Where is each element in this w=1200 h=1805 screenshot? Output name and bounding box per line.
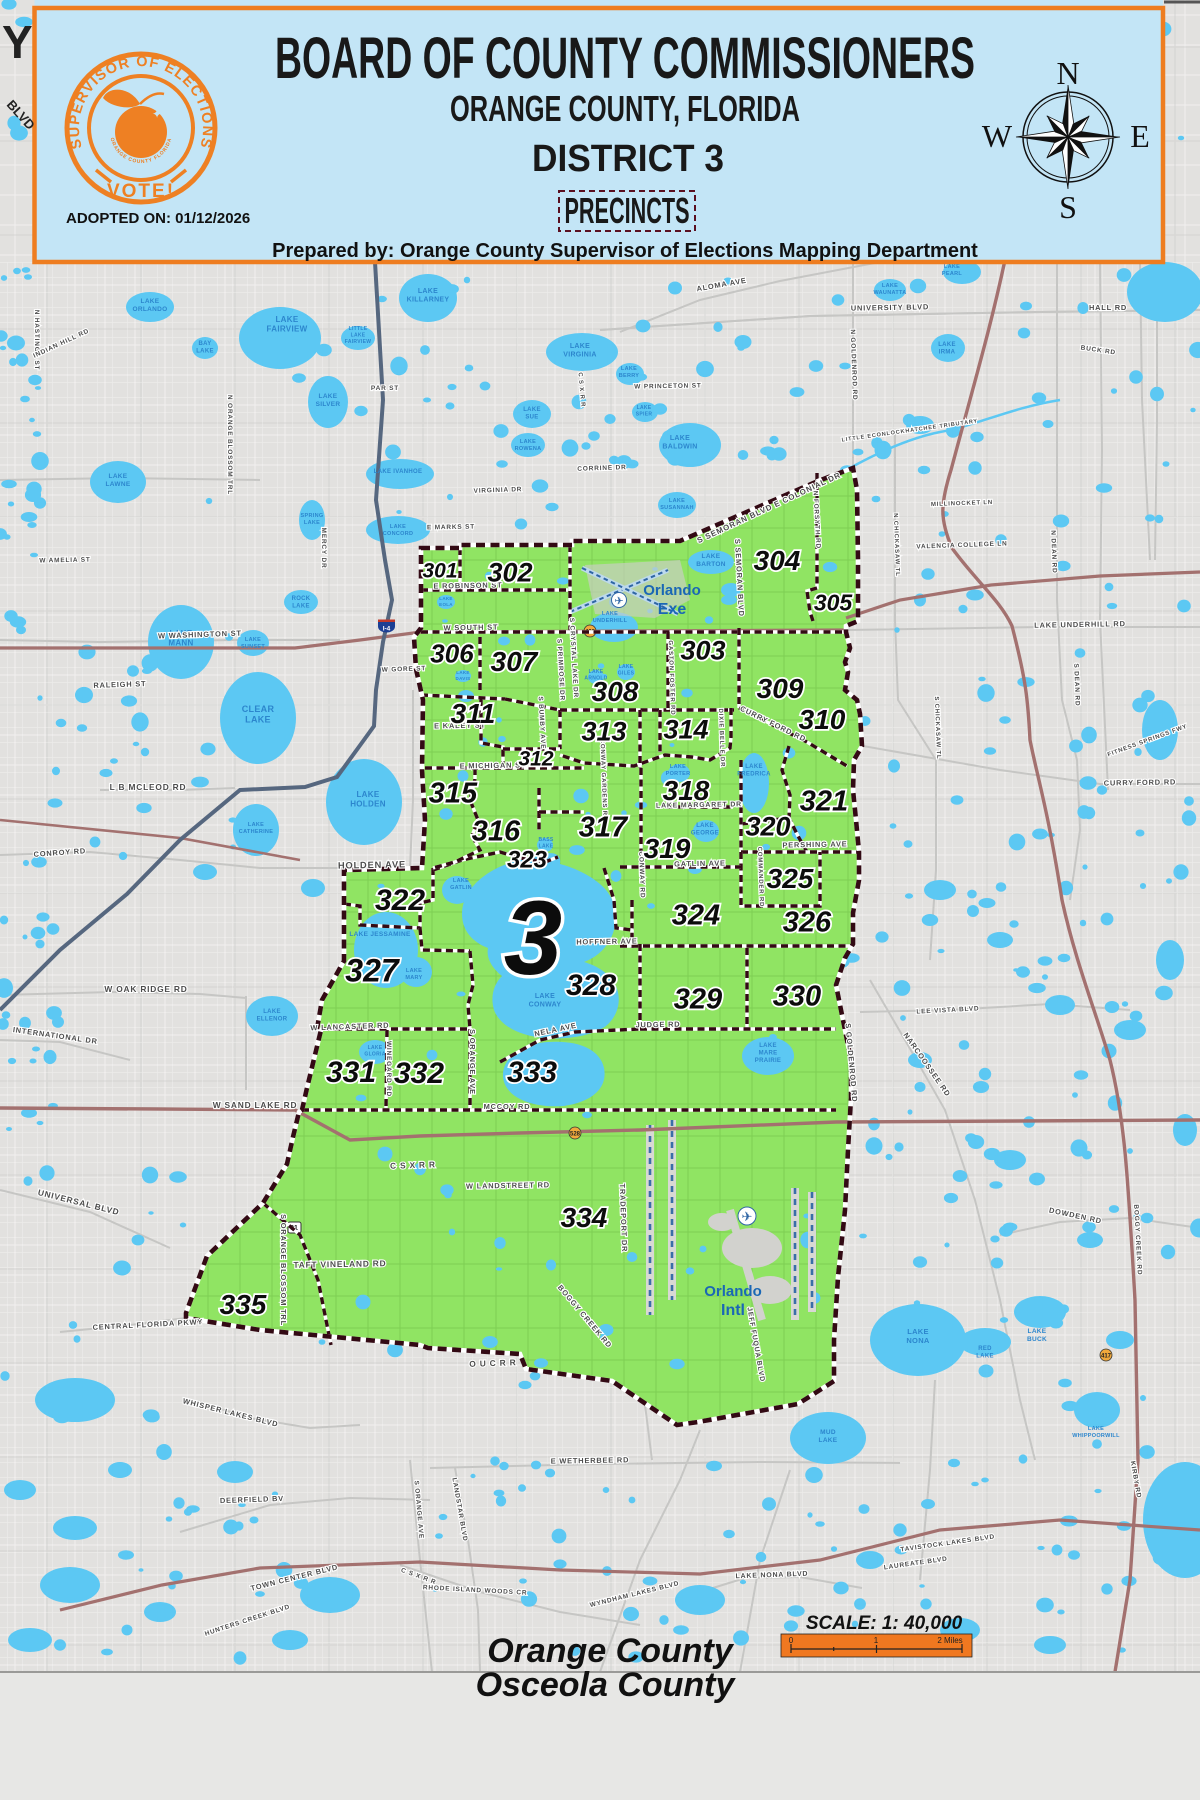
svg-text:LAKE: LAKE [759,1043,777,1049]
svg-text:LAKE: LAKE [637,405,652,411]
svg-text:BASS: BASS [538,837,553,843]
svg-text:W PRINCETON ST: W PRINCETON ST [634,382,702,390]
svg-text:LAKE JESSAMINE: LAKE JESSAMINE [349,931,411,938]
svg-text:LAKE: LAKE [621,366,637,372]
svg-text:GEORGE: GEORGE [691,831,719,837]
svg-text:306: 306 [430,638,474,668]
svg-text:301: 301 [422,560,457,583]
svg-text:0: 0 [789,1636,794,1645]
svg-text:LAKE: LAKE [907,1327,929,1336]
svg-text:Y: Y [2,16,33,68]
svg-text:VOTE!: VOTE! [107,181,175,202]
svg-text:417: 417 [1101,1354,1112,1360]
svg-text:LAKE: LAKE [406,968,422,974]
svg-text:LAKE IVANHOE: LAKE IVANHOE [374,469,423,475]
svg-text:LAKE: LAKE [109,473,128,480]
svg-text:Orlando: Orlando [643,582,701,599]
svg-text:PERSHING AVE: PERSHING AVE [782,839,847,849]
svg-text:310: 310 [799,704,846,735]
svg-text:LAKE: LAKE [319,393,338,400]
svg-text:LAKE UNDERHILL RD: LAKE UNDERHILL RD [1034,619,1126,630]
svg-text:317: 317 [579,811,629,843]
svg-text:311: 311 [451,698,496,729]
svg-text:WAUNATTA: WAUNATTA [873,290,906,296]
svg-text:FAIRVIEW: FAIRVIEW [267,325,308,334]
svg-text:BERRY: BERRY [619,373,640,379]
svg-text:LAKE: LAKE [141,298,160,305]
svg-text:LAKE: LAKE [882,283,898,289]
svg-text:N ORANGE BLOSSOM TRL: N ORANGE BLOSSOM TRL [226,395,233,495]
svg-text:329: 329 [674,983,722,1015]
svg-text:E: E [1130,118,1150,154]
svg-text:SUE: SUE [525,415,538,421]
svg-text:322: 322 [375,884,425,917]
svg-text:S DEAN RD: S DEAN RD [1072,663,1080,706]
svg-text:331: 331 [326,1056,376,1089]
svg-text:332: 332 [394,1057,444,1090]
svg-text:✦: ✦ [152,107,162,121]
svg-text:O U C R R: O U C R R [469,1357,516,1369]
svg-text:321: 321 [800,785,848,817]
svg-text:BUCK: BUCK [1027,1336,1047,1343]
svg-text:I-4: I-4 [383,626,391,633]
svg-text:304: 304 [754,545,801,576]
svg-text:DISTRICT 3: DISTRICT 3 [532,138,724,180]
svg-text:LAKE: LAKE [357,790,380,799]
svg-text:E MICHIGAN ST: E MICHIGAN ST [460,760,527,770]
svg-text:LAKE: LAKE [702,553,721,560]
svg-text:RALEIGH ST: RALEIGH ST [93,679,146,690]
svg-text:LAKE: LAKE [456,670,469,675]
svg-text:320: 320 [745,812,790,842]
svg-text:334: 334 [561,1202,608,1233]
svg-text:LAKE: LAKE [196,349,214,355]
svg-text:VIRGINIA: VIRGINIA [563,352,597,359]
svg-text:BARTON: BARTON [696,561,726,568]
svg-text:BAY: BAY [198,341,211,347]
svg-text:✈: ✈ [742,1209,753,1224]
svg-text:LAKE: LAKE [245,637,261,643]
svg-text:WINEGARD RD: WINEGARD RD [385,1041,392,1097]
svg-text:FREDRICA: FREDRICA [737,772,771,778]
svg-text:LAKE: LAKE [245,715,271,725]
svg-text:LAKE: LAKE [453,878,469,884]
svg-text:330: 330 [773,980,821,1012]
svg-text:LAKE: LAKE [292,604,310,610]
svg-text:CONCORD: CONCORD [383,531,414,537]
svg-text:302: 302 [487,558,532,588]
svg-text:JUDGE RD: JUDGE RD [635,1020,680,1030]
svg-text:LAKE: LAKE [602,611,618,617]
svg-text:FAIRVIEW: FAIRVIEW [345,339,371,345]
svg-text:ROWENA: ROWENA [515,446,542,452]
svg-text:TAFT VINELAND RD: TAFT VINELAND RD [293,1258,386,1270]
svg-text:LAKE: LAKE [418,288,438,295]
svg-text:LAKE: LAKE [1088,1426,1104,1432]
svg-text:316: 316 [472,815,521,847]
svg-text:LAKE: LAKE [276,315,299,324]
svg-text:319: 319 [644,833,691,864]
svg-text:E MARKS ST: E MARKS ST [427,524,475,532]
svg-text:LAKE: LAKE [368,1045,383,1051]
svg-text:335: 335 [220,1289,267,1320]
svg-text:LAKE: LAKE [263,1009,281,1015]
svg-text:S ORANGE AVE: S ORANGE AVE [468,1029,477,1095]
svg-text:307: 307 [491,646,539,677]
svg-text:326: 326 [783,906,832,938]
svg-text:LAKE: LAKE [938,342,956,348]
svg-text:2 Miles: 2 Miles [937,1636,962,1645]
svg-text:305: 305 [814,589,854,615]
svg-text:PAR ST: PAR ST [371,385,399,392]
svg-text:KILLARNEY: KILLARNEY [407,297,450,304]
svg-text:LAKE: LAKE [619,664,634,670]
svg-text:LAKE: LAKE [696,823,714,829]
svg-text:Osceola County: Osceola County [476,1666,737,1704]
svg-text:W AMELIA ST: W AMELIA ST [39,557,90,565]
svg-text:HOLDEN: HOLDEN [350,800,386,809]
svg-text:LAKE: LAKE [570,343,590,350]
svg-text:309: 309 [757,673,804,704]
svg-text:UNIVERSITY BLVD: UNIVERSITY BLVD [851,302,929,312]
svg-text:SPIER: SPIER [636,412,653,418]
svg-text:318: 318 [663,775,710,806]
svg-text:BALDWIN: BALDWIN [662,444,697,451]
svg-text:Prepared by: Orange County Sup: Prepared by: Orange County Supervisor of… [272,240,978,262]
svg-text:WHIPPOORWILL: WHIPPOORWILL [1072,1433,1120,1439]
svg-text:323: 323 [507,847,548,874]
svg-text:LAKE: LAKE [589,669,604,675]
svg-text:E WETHERBEE RD: E WETHERBEE RD [551,1455,630,1465]
svg-text:MUD: MUD [820,1429,836,1436]
svg-text:IRMA: IRMA [939,350,956,356]
svg-text:W: W [982,118,1013,154]
svg-text:SPRING: SPRING [301,513,324,519]
svg-text:SCALE: 1: 40,000: SCALE: 1: 40,000 [806,1613,963,1634]
svg-text:LAKE: LAKE [670,764,686,770]
svg-text:328: 328 [566,969,616,1002]
svg-text:324: 324 [672,899,720,931]
svg-text:LAKE: LAKE [1028,1328,1047,1335]
svg-text:MARY: MARY [405,975,422,981]
svg-text:PRECINCTS: PRECINCTS [565,190,690,231]
svg-text:DAVIS: DAVIS [456,676,471,681]
svg-text:LITTLE: LITTLE [349,326,368,332]
svg-text:LAKE: LAKE [819,1437,838,1444]
svg-text:S: S [1059,189,1077,225]
svg-text:ORANGE COUNTY, FLORIDA: ORANGE COUNTY, FLORIDA [450,88,800,129]
svg-text:LAKE: LAKE [520,439,536,445]
svg-text:528: 528 [570,1132,581,1138]
svg-text:HOLDEN AVE: HOLDEN AVE [338,859,406,870]
svg-text:HOFFNER AVE: HOFFNER AVE [576,936,637,946]
svg-text:UNDERHILL: UNDERHILL [593,618,628,624]
svg-text:Orlando: Orlando [704,1283,762,1300]
svg-text:LAKE: LAKE [248,822,264,828]
svg-text:LAKE: LAKE [669,498,685,504]
svg-text:BOARD OF COUNTY COMMISSIONERS: BOARD OF COUNTY COMMISSIONERS [275,26,975,91]
svg-text:L B MCLEOD RD: L B MCLEOD RD [110,782,187,792]
svg-text:RED: RED [978,1346,992,1352]
svg-text:PEARL: PEARL [942,271,962,277]
svg-text:LAKE: LAKE [304,520,320,526]
svg-text:W SOUTH ST: W SOUTH ST [444,623,499,633]
svg-text:313: 313 [581,717,626,747]
svg-text:✈: ✈ [614,596,623,608]
svg-text:Intl: Intl [721,1302,745,1319]
svg-text:LAKE: LAKE [351,333,366,339]
svg-text:CURRY FORD RD: CURRY FORD RD [1104,777,1177,787]
svg-text:S ORANGE BLOSSOM TRL: S ORANGE BLOSSOM TRL [279,1214,288,1326]
svg-text:CONWAY: CONWAY [529,1002,562,1009]
svg-text:W LANDSTREET RD: W LANDSTREET RD [466,1180,550,1190]
svg-text:W SAND LAKE RD: W SAND LAKE RD [213,1100,298,1110]
svg-text:SUSANNAH: SUSANNAH [660,505,694,511]
svg-text:C S X R R: C S X R R [390,1159,436,1171]
svg-text:GATLIN: GATLIN [450,885,472,891]
svg-text:3: 3 [504,880,562,997]
svg-text:W OAK RIDGE RD: W OAK RIDGE RD [104,984,187,994]
svg-text:Orange County: Orange County [487,1632,735,1670]
svg-text:SUNSET: SUNSET [241,644,265,650]
svg-text:PRAIRIE: PRAIRIE [755,1058,781,1064]
svg-text:ADOPTED ON: 01/12/2026: ADOPTED ON: 01/12/2026 [66,210,250,227]
svg-text:N: N [1056,55,1079,91]
svg-text:CATHERINE: CATHERINE [239,829,273,835]
svg-text:LAKE: LAKE [976,1354,994,1360]
svg-text:ROCK: ROCK [292,596,311,602]
svg-text:315: 315 [429,777,478,809]
svg-text:LAKE: LAKE [523,407,541,413]
svg-text:LAKE: LAKE [944,264,960,270]
svg-text:312: 312 [518,748,553,771]
svg-text:303: 303 [680,636,725,666]
svg-text:LAKE: LAKE [670,435,690,442]
svg-text:MARE: MARE [759,1051,778,1057]
svg-text:314: 314 [663,715,708,745]
svg-text:Exe: Exe [658,601,687,618]
svg-text:LAWNE: LAWNE [106,481,131,488]
svg-text:LAKE: LAKE [390,524,406,530]
svg-text:N HASTINGS ST: N HASTINGS ST [33,310,40,371]
svg-text:NONA: NONA [906,1336,930,1345]
svg-text:1: 1 [874,1636,879,1645]
svg-text:ELLENOR: ELLENOR [257,1017,288,1023]
svg-text:EOLA: EOLA [439,602,453,607]
svg-text:HALL RD: HALL RD [1089,303,1127,312]
svg-text:SILVER: SILVER [316,401,341,408]
svg-text:CLEAR: CLEAR [242,704,275,714]
svg-text:308: 308 [592,676,639,707]
svg-text:333: 333 [507,1056,557,1089]
svg-text:LAKE: LAKE [745,764,763,770]
svg-text:325: 325 [767,863,814,894]
svg-text:LAKE: LAKE [439,596,452,601]
svg-text:327: 327 [345,953,401,989]
svg-text:ORLANDO: ORLANDO [133,306,168,313]
svg-text:MERCY DR: MERCY DR [320,528,327,569]
svg-text:MCCOY RD: MCCOY RD [484,1102,531,1111]
